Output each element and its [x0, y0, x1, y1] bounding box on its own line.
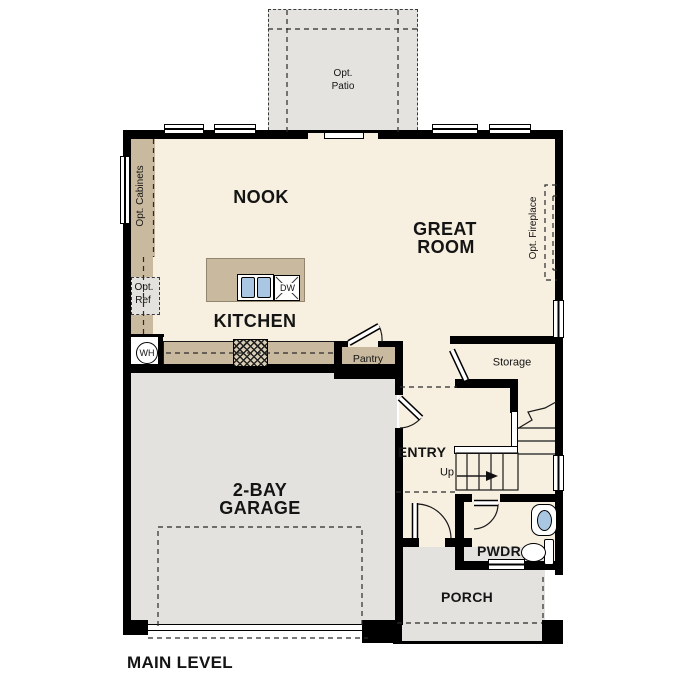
room-label-storage: Storage	[493, 358, 532, 369]
room-label-nook: NOOK	[233, 188, 289, 206]
opt-ref-label-1: Opt.	[135, 283, 154, 293]
stairs-up-label: Up	[440, 468, 454, 479]
opt-ref-label-2: Ref	[135, 296, 151, 306]
room-label-garage-2: GARAGE	[219, 499, 300, 517]
room-label-pantry: Pantry	[353, 354, 383, 365]
room-label-great-room: ROOM	[417, 238, 475, 256]
opt-fireplace-label: Opt. Fireplace	[529, 197, 539, 260]
room-label-garage-1: 2-BAY	[233, 481, 287, 499]
room-label-entry: ENTRY	[398, 445, 446, 459]
room-label-pwdr: PWDR	[477, 544, 521, 558]
opt-patio-label-2: Patio	[332, 82, 355, 92]
room-label-great: GREAT	[413, 220, 477, 238]
floor-plan: WH	[0, 0, 687, 687]
plan-title: MAIN LEVEL	[127, 653, 233, 673]
plan-linework	[0, 0, 687, 687]
dishwasher-label: DW	[279, 283, 296, 293]
up-arrow-icon	[486, 471, 498, 481]
opt-patio-label-1: Opt.	[334, 69, 353, 79]
room-label-porch: PORCH	[441, 590, 493, 604]
opt-cabinets-label: Opt. Cabinets	[136, 165, 146, 226]
stairs	[456, 402, 556, 490]
room-label-kitchen: KITCHEN	[214, 312, 297, 330]
